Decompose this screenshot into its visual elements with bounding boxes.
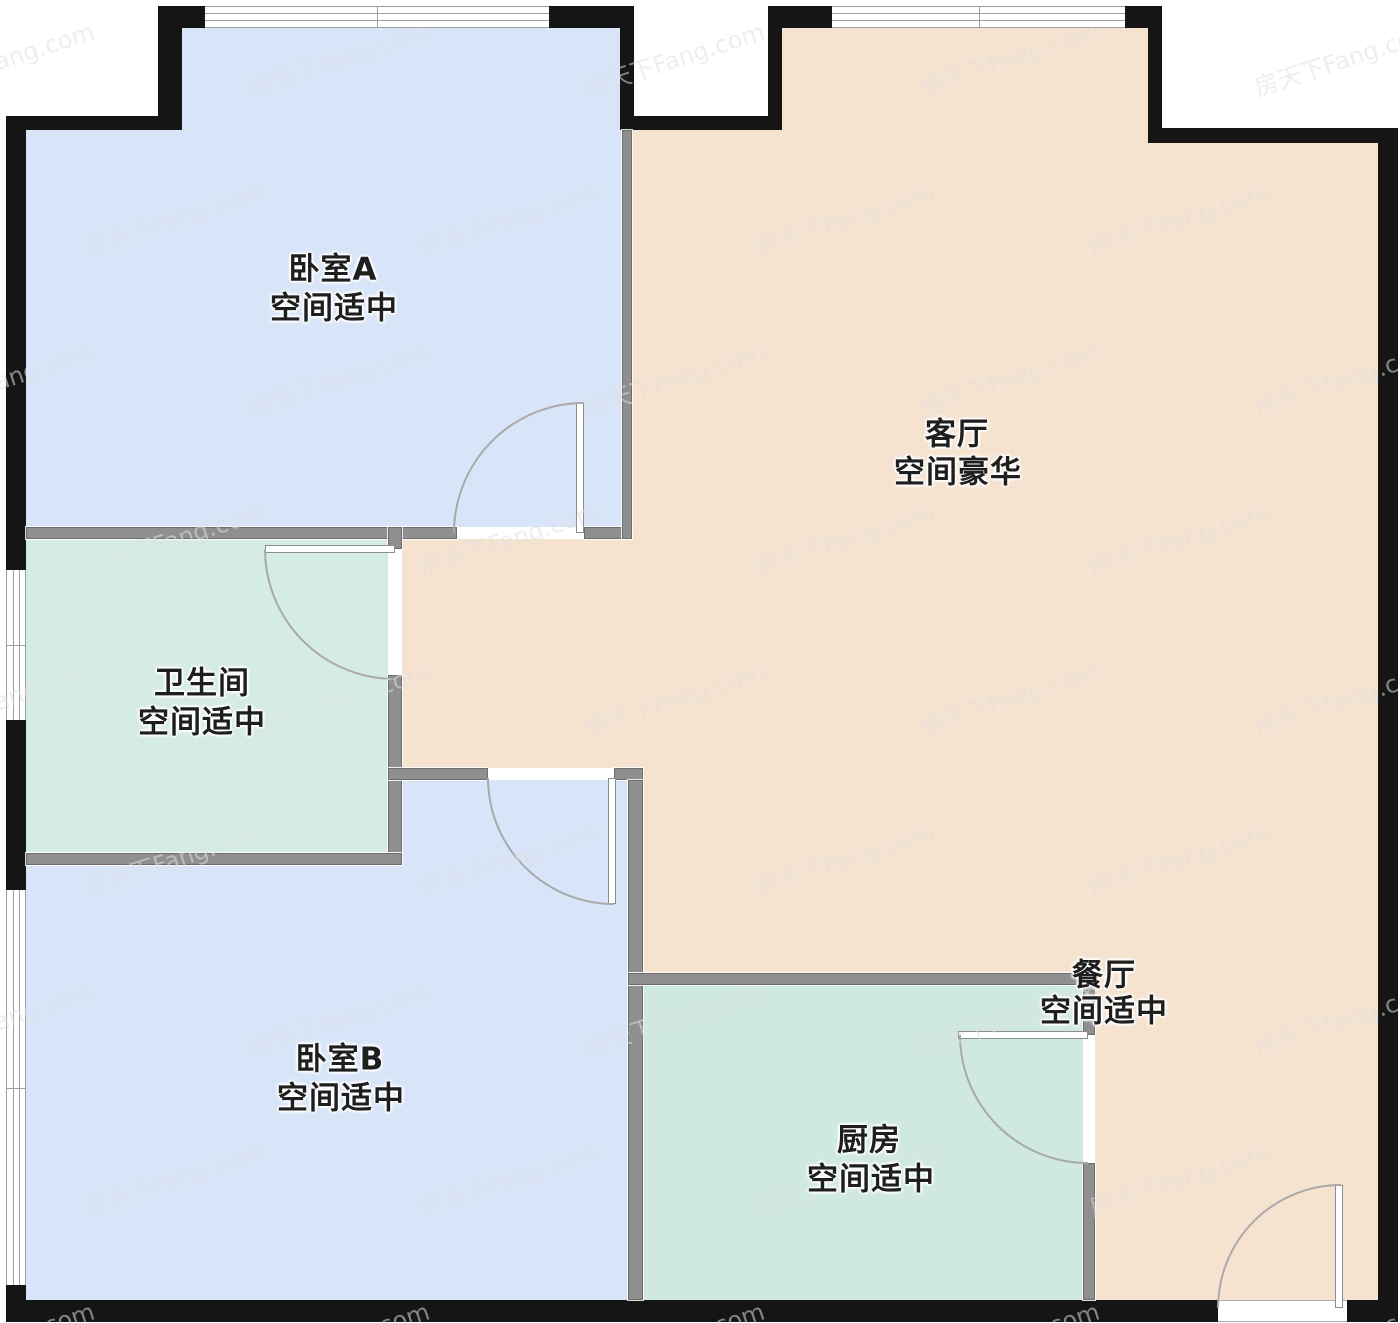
door-arc-kitchen xyxy=(960,1035,1088,1163)
room-sublabel-bedroom-a: 空间适中 xyxy=(270,283,398,328)
room-sublabel-living-room: 空间豪华 xyxy=(894,447,1022,492)
door-arc-entry xyxy=(1218,1185,1341,1308)
room-sublabel-kitchen: 空间适中 xyxy=(807,1154,935,1199)
room-sublabel-bathroom: 空间适中 xyxy=(138,697,266,742)
room-sublabel-dining-room: 空间适中 xyxy=(1040,986,1168,1031)
floor-plan: 房天下Fang.com房天下Fang.com房天下Fang.com房天下Fang… xyxy=(0,0,1400,1323)
door-arc-bedroom-b xyxy=(488,778,614,904)
door-arc-bedroom-a xyxy=(454,403,584,533)
room-sublabel-bedroom-b: 空间适中 xyxy=(277,1073,405,1118)
door-arc-bathroom xyxy=(265,549,395,679)
